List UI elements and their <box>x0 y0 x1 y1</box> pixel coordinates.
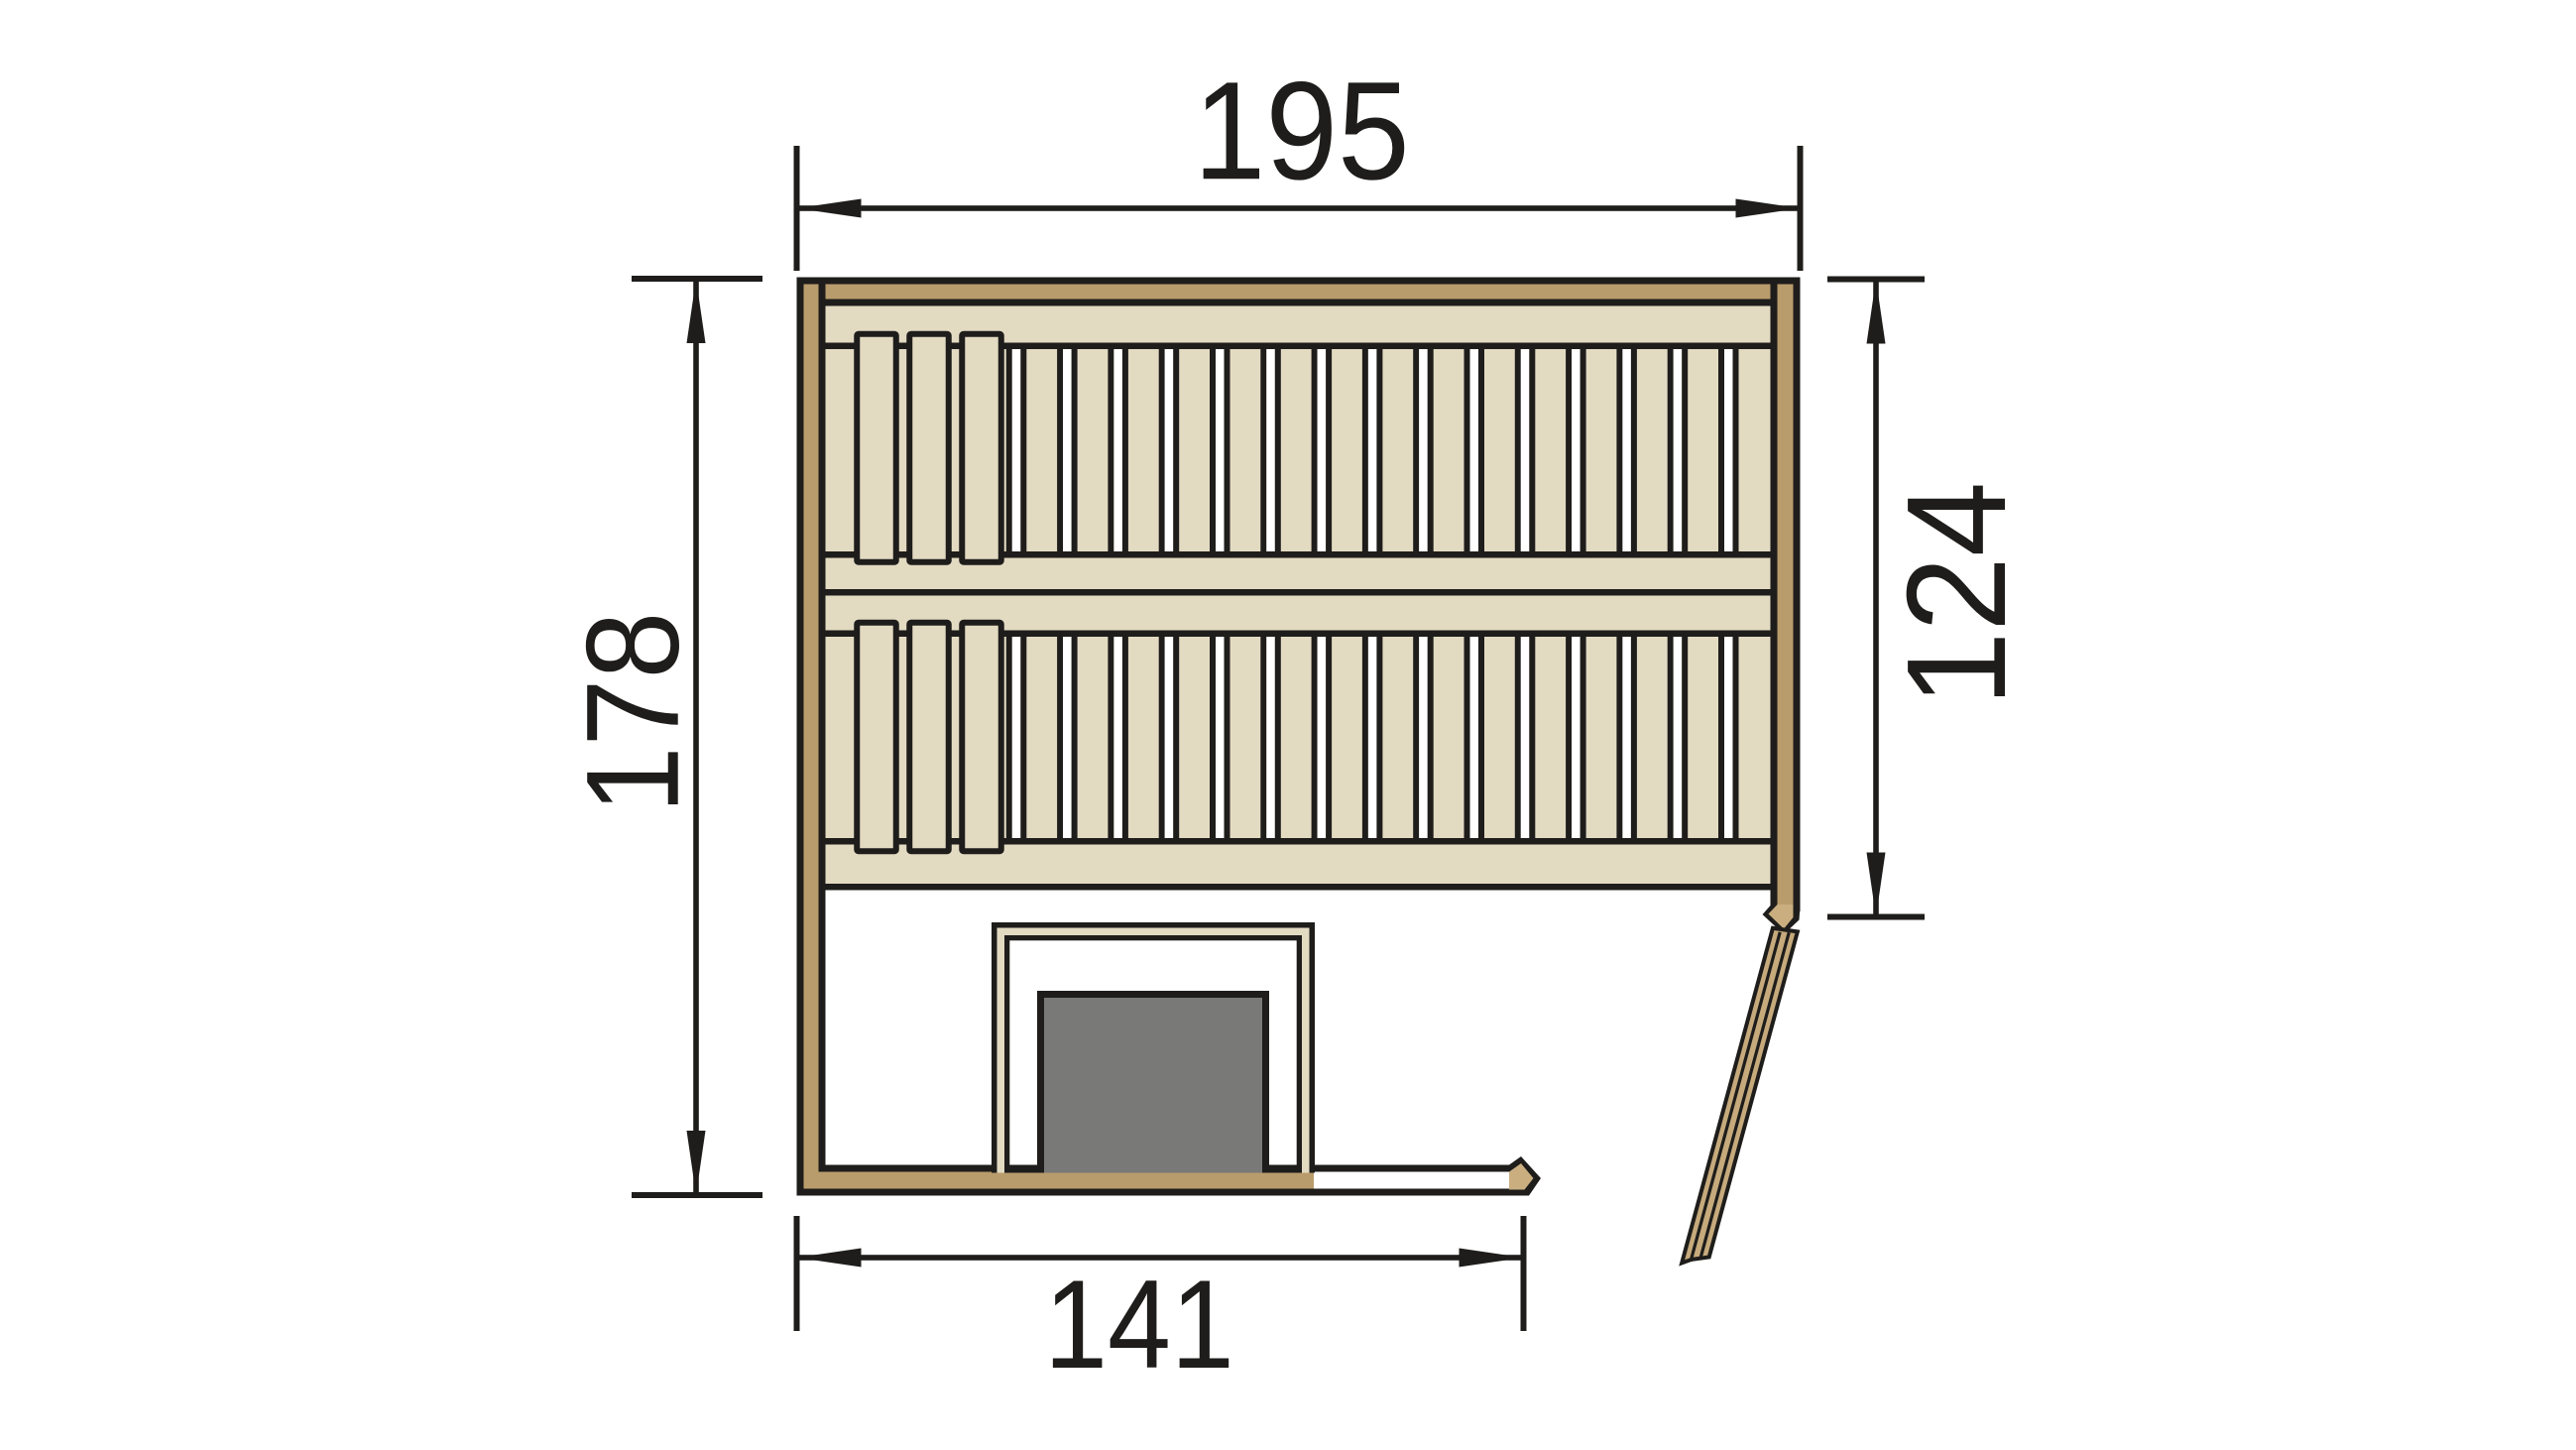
svg-text:195: 195 <box>1194 53 1410 209</box>
svg-text:141: 141 <box>1044 1254 1234 1395</box>
svg-text:178: 178 <box>559 612 707 814</box>
svg-text:124: 124 <box>1878 482 2036 707</box>
